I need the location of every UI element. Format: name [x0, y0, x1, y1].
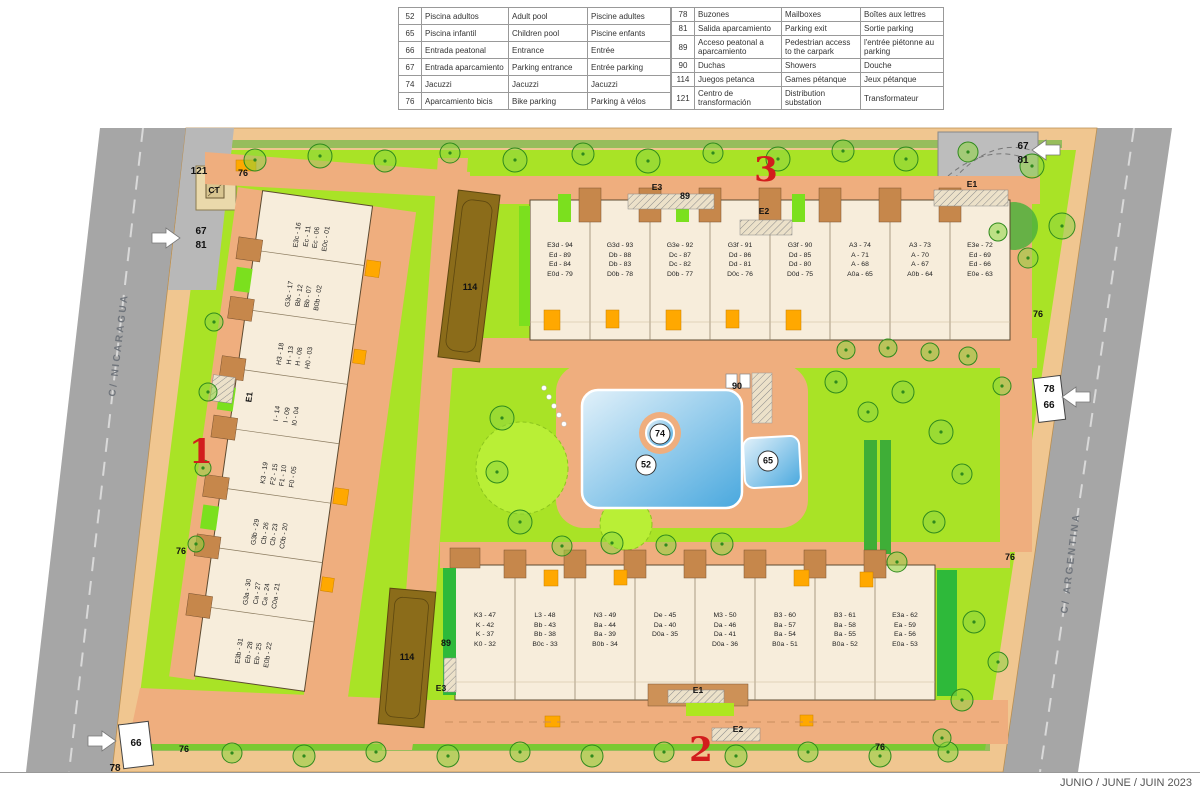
legend-num: 76 — [399, 93, 422, 110]
block-number-2: 2 — [689, 745, 713, 755]
marker-67-left: 67 — [195, 227, 206, 237]
legend-fr: Boîtes aux lettres — [861, 8, 944, 22]
stair-label-e1-topright: E1 — [967, 179, 977, 189]
building3-unit-label: E3d - 94Ed - 89Ed - 84E0d - 79 — [530, 241, 590, 279]
marker-78-right: 78 — [1043, 385, 1054, 395]
block-number-1: 1 — [189, 447, 213, 457]
building2-unit-label: L3 - 48Bb - 43Bb - 38B0c - 33 — [515, 611, 575, 649]
building3-unit-label: A3 - 74A - 71A - 68A0a - 65 — [830, 241, 890, 279]
marker-114-bottom-petanque: 114 — [400, 652, 415, 662]
legend-fr: l'entrée piétonne au parking — [861, 36, 944, 59]
legend-es: Piscina adultos — [422, 8, 509, 25]
marker-66-right: 66 — [1043, 401, 1054, 411]
legend-en: Mailboxes — [782, 8, 861, 22]
stair-label-e2-bottom: E2 — [733, 724, 743, 734]
legend-fr: Jeux pétanque — [861, 73, 944, 87]
legend: 52Piscina adultosAdult poolPiscine adult… — [398, 7, 944, 110]
planter-e1-bottom — [686, 703, 734, 716]
legend-fr: Piscine enfants — [588, 25, 671, 42]
marker-89-top: 89 — [680, 191, 690, 201]
legend-en: Parking exit — [782, 22, 861, 36]
legend-fr: Transformateur — [861, 87, 944, 110]
legend-num: 81 — [672, 22, 695, 36]
building2-unit-label: N3 - 49Ba - 44Ba - 39B0b - 34 — [575, 611, 635, 649]
stair-label-e2-top: E2 — [759, 206, 769, 216]
legend-en: Games pétanque — [782, 73, 861, 87]
building3-unit-label: G3d - 93Db - 88Db - 83D0b - 78 — [590, 241, 650, 279]
building3-unit-label: G3e - 92Dc - 87Dc - 82D0b - 77 — [650, 241, 710, 279]
legend-num: 66 — [399, 42, 422, 59]
legend-es: Salida aparcamiento — [695, 22, 782, 36]
legend-es: Entrada peatonal — [422, 42, 509, 59]
marker-76-bottom: 76 — [875, 742, 885, 752]
legend-num: 121 — [672, 87, 695, 110]
legend-en: Pedestrian access to the carpark — [782, 36, 861, 59]
marker-67-topright: 67 — [1017, 142, 1028, 152]
legend-es: Piscina infantil — [422, 25, 509, 42]
building3-unit-label: A3 - 73A - 70A - 67A0b - 64 — [890, 241, 950, 279]
legend-en: Children pool — [509, 25, 588, 42]
legend-en: Bike parking — [509, 93, 588, 110]
stair-label-e3-bottom: E3 — [436, 683, 446, 693]
legend-num: 52 — [399, 8, 422, 25]
marker-76-bottomleft: 76 — [179, 744, 189, 754]
building3-unit-label: E3e - 72Ed - 69Ed - 66E0e - 63 — [950, 241, 1010, 279]
pool-pergola — [752, 373, 772, 423]
legend-es: Buzones — [695, 8, 782, 22]
legend-table-right: 78BuzonesMailboxesBoîtes aux lettres 81S… — [671, 7, 944, 110]
stair-label-e3-top: E3 — [652, 182, 662, 192]
legend-fr: Piscine adultes — [588, 8, 671, 25]
legend-fr: Sortie parking — [861, 22, 944, 36]
building2-unit-label: M3 - 50Da - 46Da - 41D0a - 36 — [695, 611, 755, 649]
stair-e1-topright — [934, 190, 1008, 206]
marker-81-topright: 81 — [1017, 156, 1028, 166]
building2-unit-label: B3 - 61Ba - 58Ba - 55B0a - 52 — [815, 611, 875, 649]
site-plan-canvas — [0, 0, 1200, 792]
marker-81-left: 81 — [195, 241, 206, 251]
legend-es: Centro de transformación — [695, 87, 782, 110]
legend-table-left: 52Piscina adultosAdult poolPiscine adult… — [398, 7, 671, 110]
date-stamp: JUNIO / JUNE / JUIN 2023 — [1060, 777, 1192, 789]
legend-en: Jacuzzi — [509, 76, 588, 93]
legend-en: Entrance — [509, 42, 588, 59]
marker-65-children-pool: 65 — [758, 451, 779, 472]
legend-es: Duchas — [695, 59, 782, 73]
stair-e3-top — [628, 194, 714, 209]
block-number-3: 3 — [754, 165, 778, 175]
building2-unit-label: De - 45Da - 40D0a - 35 — [635, 611, 695, 640]
stair-e2-top — [740, 220, 792, 235]
legend-fr: Parking à vélos — [588, 93, 671, 110]
legend-fr: Entrée parking — [588, 59, 671, 76]
marker-74-jacuzzi: 74 — [650, 424, 671, 445]
legend-num: 74 — [399, 76, 422, 93]
marker-76-right: 76 — [1033, 309, 1043, 319]
marker-76-leftmid: 76 — [176, 546, 186, 556]
legend-num: 78 — [672, 8, 695, 22]
legend-num: 65 — [399, 25, 422, 42]
footer-divider — [0, 772, 1200, 773]
marker-90-showers: 90 — [732, 381, 742, 391]
legend-es: Juegos petanca — [695, 73, 782, 87]
marker-ct: CT — [208, 185, 219, 195]
building3-unit-label: G3f - 90Dd - 85Dd - 80D0d - 75 — [770, 241, 830, 279]
legend-es: Entrada aparcamiento — [422, 59, 509, 76]
legend-en: Showers — [782, 59, 861, 73]
stair-label-e1-bottom: E1 — [693, 685, 703, 695]
building2-unit-label: B3 - 60Ba - 57Ba - 54B0a - 51 — [755, 611, 815, 649]
marker-52-adult-pool: 52 — [636, 455, 657, 476]
marker-66-bottomleft: 66 — [130, 739, 141, 749]
marker-121-substation: 121 — [191, 167, 208, 177]
legend-en: Parking entrance — [509, 59, 588, 76]
legend-es: Aparcamiento bicis — [422, 93, 509, 110]
legend-num: 67 — [399, 59, 422, 76]
stair-label-e1-building1: E1 — [243, 391, 254, 403]
legend-es: Acceso peatonal a aparcamiento — [695, 36, 782, 59]
legend-en: Distribution substation — [782, 87, 861, 110]
legend-fr: Douche — [861, 59, 944, 73]
entrance-box-78-66-right — [1033, 375, 1065, 422]
marker-114-top-petanque: 114 — [463, 282, 478, 292]
legend-num: 114 — [672, 73, 695, 87]
legend-en: Adult pool — [509, 8, 588, 25]
marker-89-bottom: 89 — [441, 638, 451, 648]
hedge-bottom — [140, 744, 990, 751]
hedge-b2-right — [937, 570, 957, 696]
legend-es: Jacuzzi — [422, 76, 509, 93]
legend-fr: Entrée — [588, 42, 671, 59]
legend-num: 90 — [672, 59, 695, 73]
legend-fr: Jacuzzi — [588, 76, 671, 93]
building3-unit-label: G3f - 91Dd - 86Dd - 81D0c - 76 — [710, 241, 770, 279]
legend-num: 89 — [672, 36, 695, 59]
building2-unit-label: K3 - 47K - 42K - 37K0 - 32 — [455, 611, 515, 649]
marker-76-topleft: 76 — [238, 168, 248, 178]
marker-76-rightlower: 76 — [1005, 552, 1015, 562]
building2-unit-label: E3a - 62Ea - 59Ea - 56E0a - 53 — [875, 611, 935, 649]
